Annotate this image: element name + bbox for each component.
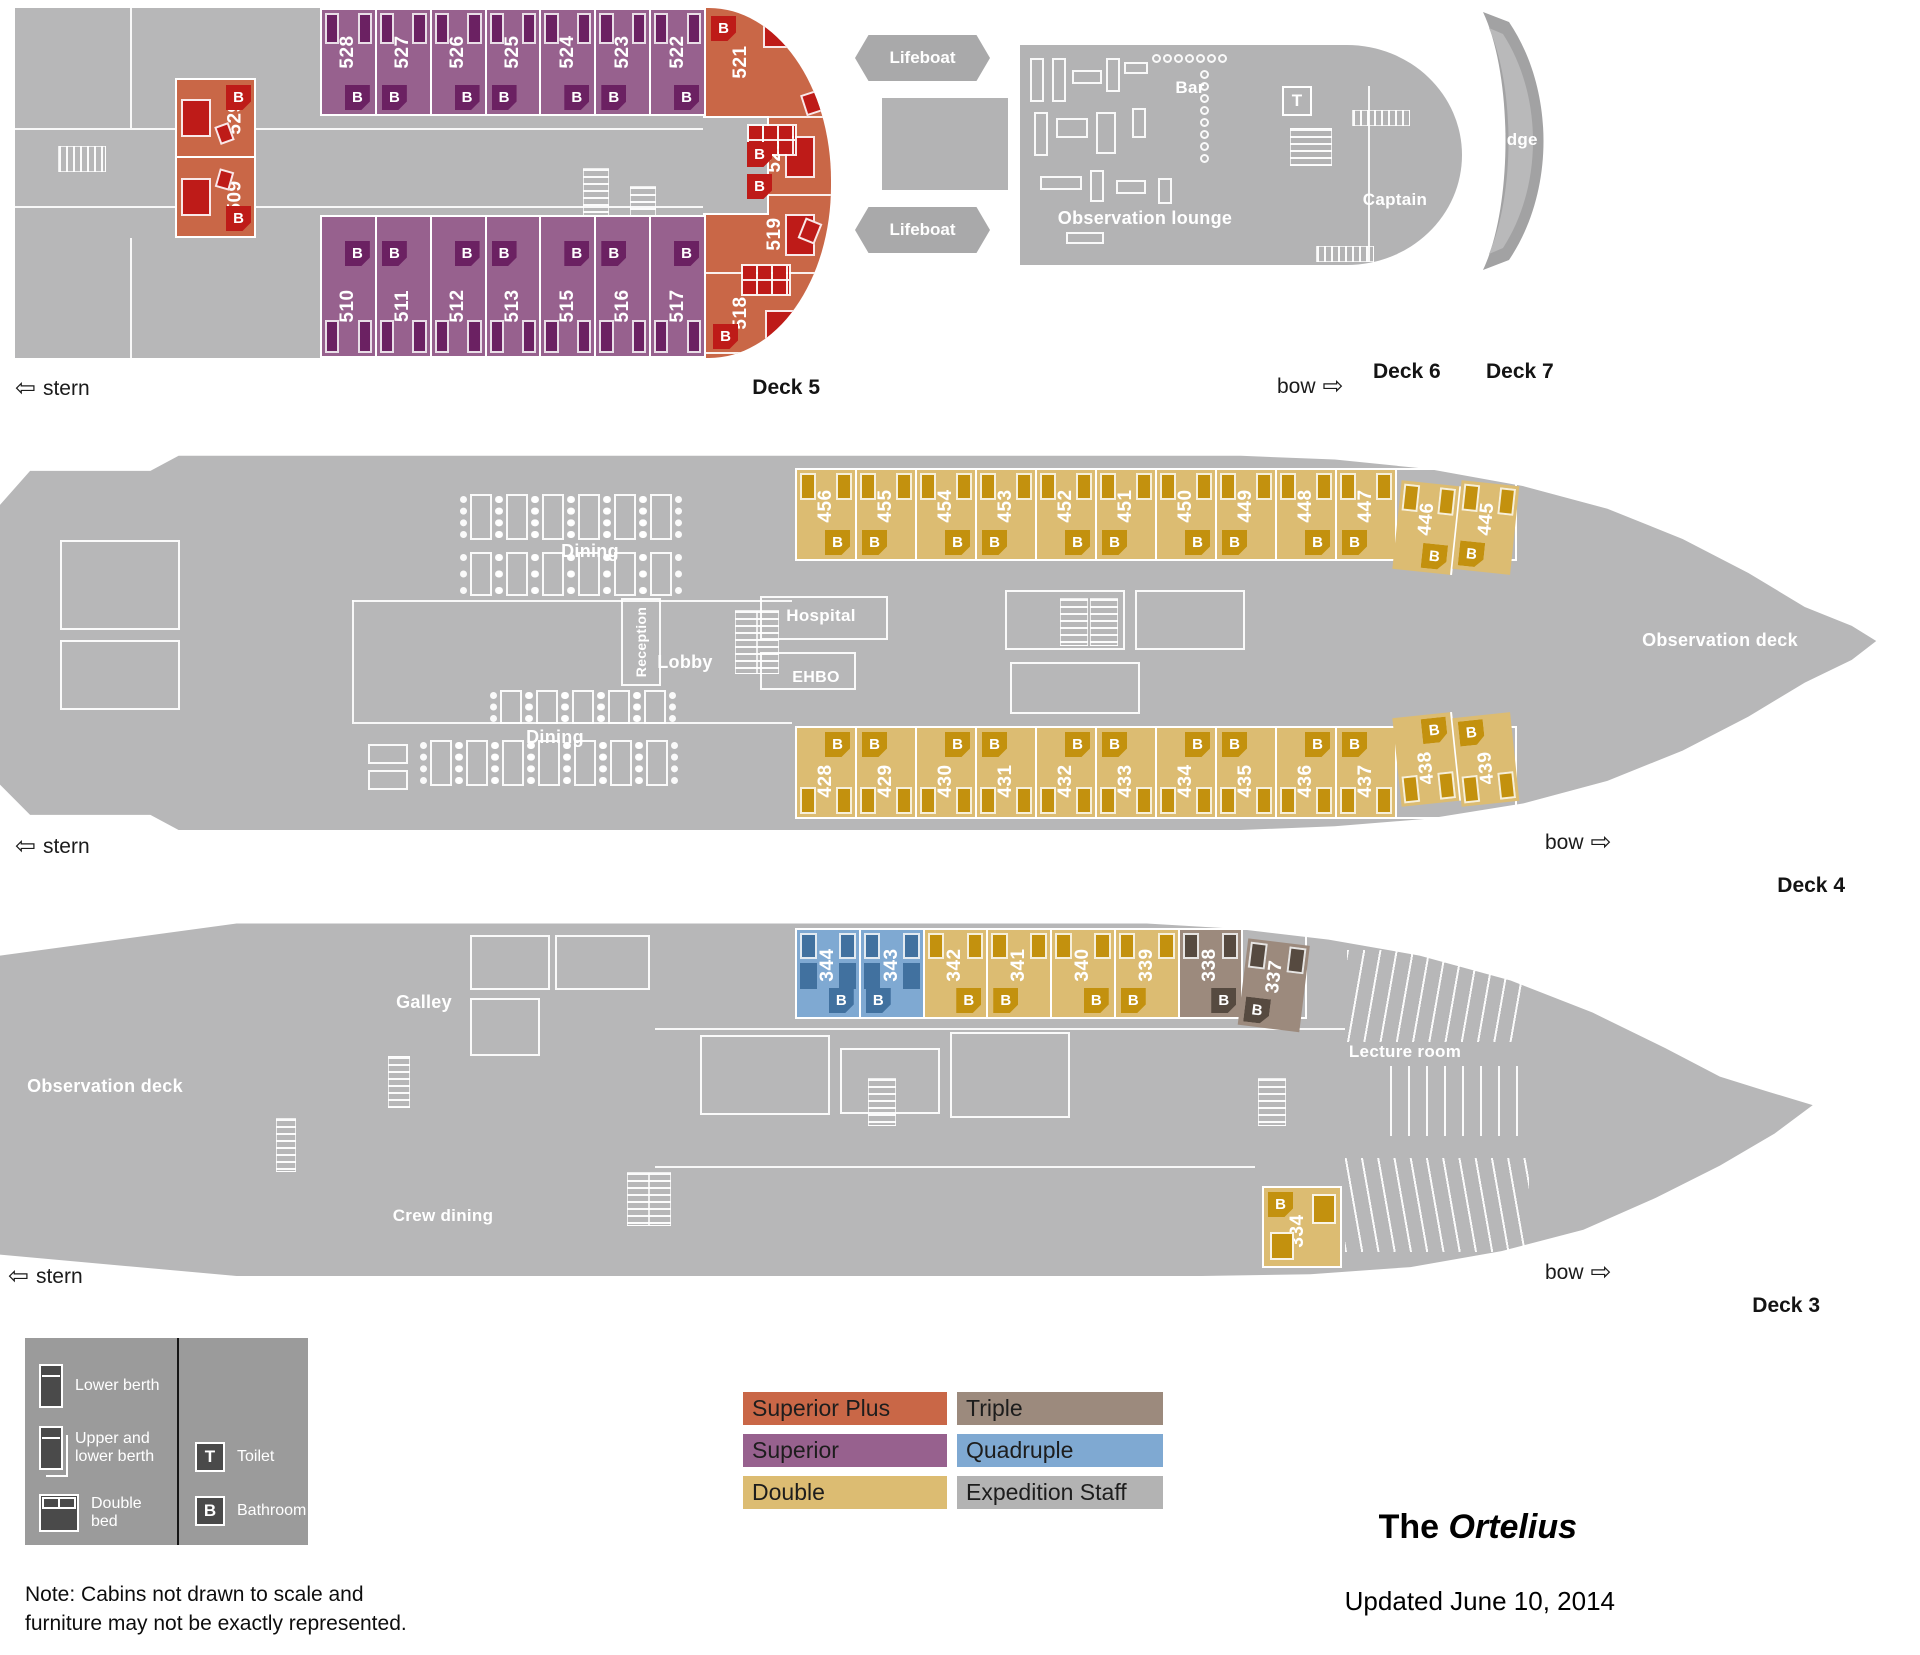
lifeboat-bottom: Lifeboat — [855, 207, 990, 253]
bed-icon — [1287, 946, 1307, 974]
legend-item: BBathroom — [195, 1496, 305, 1526]
bed-icon — [864, 933, 881, 959]
bed-icon — [1030, 933, 1047, 959]
cabin-339: 339B — [1116, 930, 1180, 1017]
cabin-number: 344 — [817, 948, 839, 981]
chair-icon — [1174, 54, 1183, 63]
bed-icon — [956, 787, 972, 814]
deck5-stern-label: ⇦ stern — [15, 376, 90, 401]
bed-icon — [836, 473, 852, 500]
wall-line — [15, 128, 703, 130]
bathroom-badge: B — [564, 85, 589, 110]
bathroom-badge: B — [492, 85, 517, 110]
cabin-432: 432B — [1037, 728, 1097, 817]
title-prefix: The — [1379, 1508, 1449, 1546]
bathroom-badge: B — [1185, 732, 1210, 757]
key-label: Triple — [966, 1395, 1023, 1422]
cabin-number: 525 — [502, 35, 524, 68]
room-outline — [368, 744, 408, 764]
bed-icon — [522, 320, 536, 353]
cabin-516: 516B — [596, 217, 651, 356]
deck3-bow-label: bow ⇨ — [1545, 1260, 1611, 1285]
bathroom-badge: B — [982, 530, 1007, 555]
chair-icon — [1152, 54, 1161, 63]
deck4-bow-label: bow ⇨ — [1545, 830, 1611, 855]
bed-icon — [1136, 787, 1152, 814]
single-bed-icon — [39, 1364, 63, 1408]
bow-text: bow — [1545, 831, 1584, 855]
stern-text: stern — [36, 1265, 83, 1289]
cabin-number: 453 — [995, 489, 1017, 522]
bed-icon — [358, 13, 372, 44]
bathroom-badge: B — [455, 85, 480, 110]
stairs-icon — [735, 610, 757, 674]
legend-bed-column: Lower berthUpper and lower berthDouble b… — [25, 1338, 177, 1545]
bathroom-badge: B — [1458, 719, 1485, 746]
bed-icon — [1100, 473, 1116, 500]
cabin-430: 430B — [917, 728, 977, 817]
bed-icon — [358, 320, 372, 353]
bed-icon — [1220, 473, 1236, 500]
key-swatch-superior: Superior — [743, 1434, 947, 1467]
cabin-525: 525B — [487, 10, 542, 114]
cabin-number: 439 — [1474, 751, 1499, 786]
cabin-522: 522B — [651, 10, 704, 114]
wall-line — [1368, 86, 1370, 262]
bed-icon — [1438, 771, 1456, 799]
cabin-number: 429 — [875, 765, 897, 798]
cabin-number: 527 — [392, 35, 414, 68]
table-icon — [506, 494, 528, 540]
legend-item: Lower berth — [39, 1364, 169, 1408]
room-outline — [1034, 112, 1048, 156]
chair-dots — [496, 554, 503, 594]
room-outline — [60, 540, 180, 630]
cabin-448: 448B — [1277, 470, 1337, 559]
table-icon — [506, 552, 528, 596]
bathroom-badge: B — [825, 530, 850, 555]
cabin-509: 509B — [177, 158, 254, 236]
cabin-number: 438 — [1414, 751, 1439, 786]
deck3-observation-deck-label: Observation deck — [25, 1076, 185, 1097]
room-outline — [700, 1035, 830, 1115]
table-icon — [470, 552, 492, 596]
deck4-label: Deck 4 — [1695, 874, 1845, 898]
cabin-528: 528B — [322, 10, 377, 114]
cabin-436: 436B — [1277, 728, 1337, 817]
bed-icon — [1094, 933, 1111, 959]
bed-icon — [1055, 933, 1072, 959]
chair-dots — [669, 692, 676, 722]
bed-icon — [1160, 473, 1176, 500]
stairs-icon — [1316, 246, 1374, 262]
room-outline — [1072, 70, 1102, 84]
bathroom-badge: B — [345, 85, 370, 110]
cabin-number: 451 — [1115, 489, 1137, 522]
chair-dots — [532, 554, 539, 594]
bed-icon — [1280, 473, 1296, 500]
cabin-number: 432 — [1055, 765, 1077, 798]
bed-icon — [1119, 933, 1136, 959]
bed-icon — [920, 473, 936, 500]
stairs-icon — [649, 1172, 671, 1226]
bathroom-badge: B — [382, 241, 407, 266]
legend-label: Lower berth — [75, 1377, 160, 1395]
cabin-number: 523 — [612, 35, 634, 68]
chair-dots — [492, 742, 499, 784]
stairs-icon — [1258, 1078, 1286, 1126]
room-outline — [1052, 58, 1066, 102]
cabin-513: 513B — [487, 217, 542, 356]
table-icon — [536, 690, 558, 724]
bathroom-badge: B — [601, 241, 626, 266]
chair-dots — [671, 742, 678, 784]
room-outline — [1030, 58, 1044, 102]
bed-icon — [1040, 473, 1056, 500]
chair-dots — [564, 742, 571, 784]
chair-dots — [636, 742, 643, 784]
room-outline — [1106, 58, 1120, 92]
room-outline — [1158, 178, 1172, 204]
bed-icon — [1340, 473, 1356, 500]
chair-dots — [460, 554, 467, 594]
bed-icon — [1160, 787, 1176, 814]
cabin-number: 517 — [667, 289, 689, 322]
key-label: Double — [752, 1479, 825, 1506]
cabin-number: 516 — [612, 289, 634, 322]
bathroom-badge: B — [1305, 732, 1330, 757]
cabin-454: 454B — [917, 470, 977, 559]
bed-icon — [1340, 787, 1356, 814]
bathroom-badge: B — [226, 85, 251, 110]
bed-icon — [1222, 933, 1239, 959]
chair-dots — [490, 692, 497, 722]
cabin-526: 526B — [432, 10, 487, 114]
cabin-334: 334B — [1262, 1186, 1342, 1268]
bed-icon — [763, 18, 807, 48]
ehbo-label: EHBO — [768, 669, 864, 687]
bow-text: bow — [1545, 1261, 1584, 1285]
bed-icon — [967, 933, 984, 959]
bed-icon — [654, 13, 668, 44]
legend-item: Double bed — [39, 1494, 169, 1532]
cabin-number: 522 — [667, 35, 689, 68]
cabin-number: 512 — [447, 289, 469, 322]
stern-arrow-icon: ⇦ — [8, 1264, 29, 1289]
bathroom-badge: B — [993, 988, 1018, 1013]
bed-icon — [800, 787, 816, 814]
bathroom-badge: B — [674, 85, 699, 110]
cabin-338: 338B — [1180, 930, 1244, 1017]
cabin-435: 435B — [1217, 728, 1277, 817]
bed-icon — [1100, 787, 1116, 814]
table-icon — [542, 494, 564, 540]
bed-icon — [325, 320, 339, 353]
deck5-bow-cabins: 521520519518BBBB — [703, 8, 831, 358]
bathroom-badge: B — [1065, 530, 1090, 555]
bed-icon — [800, 473, 816, 500]
chair-dots — [604, 496, 611, 538]
chair-icon — [1207, 54, 1216, 63]
cabin-number: 436 — [1295, 765, 1317, 798]
cabin-337: 337B — [1238, 938, 1310, 1032]
bed-icon — [1196, 473, 1212, 500]
cabin-number: 452 — [1055, 489, 1077, 522]
cabin-342: 342B — [925, 930, 989, 1017]
lecture-seats — [1345, 1158, 1529, 1252]
cabin-447: 447B — [1337, 470, 1397, 559]
bed-icon — [991, 933, 1008, 959]
bed-icon — [435, 320, 449, 353]
deck5-cabins-bottom-row: 510B511B512B513B515B516B517B — [320, 215, 706, 358]
cabin-number: 448 — [1295, 489, 1317, 522]
table-icon — [614, 494, 636, 540]
bow-arrow-icon: ⇨ — [1591, 1260, 1612, 1285]
bed-icon — [920, 787, 936, 814]
chair-icon — [1163, 54, 1172, 63]
cabin-number: 437 — [1355, 765, 1377, 798]
bed-icon — [632, 13, 646, 44]
cabin-number: 528 — [337, 35, 359, 68]
bathroom-badge: B — [1065, 732, 1090, 757]
cabin-341: 341B — [988, 930, 1052, 1017]
dining-label-top: Dining — [540, 541, 640, 562]
bed-icon — [1256, 787, 1272, 814]
bed-icon — [412, 320, 426, 353]
cabin-number: 434 — [1175, 765, 1197, 798]
bathroom-badge: B — [492, 241, 517, 266]
bathroom-badge: B — [982, 732, 1007, 757]
chair-dots — [598, 692, 605, 722]
chair-dots — [528, 742, 535, 784]
bathroom-badge: B — [1458, 540, 1485, 567]
cabin-452: 452B — [1037, 470, 1097, 559]
room-outline — [1124, 62, 1148, 74]
bed-icon — [1158, 933, 1175, 959]
deck3-stern-label: ⇦ stern — [8, 1264, 83, 1289]
table-icon — [578, 494, 600, 540]
cabin-527: 527B — [377, 10, 432, 114]
chair-dots — [675, 496, 682, 538]
room-outline — [470, 935, 550, 990]
table-icon — [500, 690, 522, 724]
chair-dots — [496, 496, 503, 538]
bed-icon — [544, 13, 558, 44]
cabin-number: 526 — [447, 35, 469, 68]
bow-arrow-icon: ⇨ — [1591, 830, 1612, 855]
bed-icon — [1280, 787, 1296, 814]
chair-icon — [1196, 54, 1205, 63]
deck6-structure — [882, 98, 1008, 190]
legend-badge-column: TToiletBBathroom — [177, 1338, 308, 1545]
bed-icon — [980, 787, 996, 814]
bed-icon — [1248, 942, 1268, 970]
deck5-cabins-529-509: 529B509B — [175, 78, 256, 238]
stairs-icon — [1290, 128, 1332, 166]
dresser-icon — [743, 266, 789, 294]
bed-icon — [1312, 1194, 1336, 1224]
deck5-label: Deck 5 — [700, 376, 820, 400]
room-outline — [1066, 232, 1104, 244]
room-outline — [1096, 112, 1116, 154]
wall-line — [130, 8, 132, 128]
chair-icon — [1200, 154, 1209, 163]
cabin-511: 511B — [377, 217, 432, 356]
deck5-cabins-top-row: 528B527B526B525B524B523B522B — [320, 8, 706, 116]
room-outline — [1116, 180, 1146, 194]
room-outline — [1135, 590, 1245, 650]
bathroom-badge: B — [1102, 530, 1127, 555]
key-label: Quadruple — [966, 1437, 1073, 1464]
stern-text: stern — [43, 835, 90, 859]
chair-dots — [562, 692, 569, 722]
room-outline — [950, 1032, 1070, 1118]
bathroom-badge: B — [945, 732, 970, 757]
cabin-523: 523B — [596, 10, 651, 114]
observation-lounge-label: Observation lounge — [1030, 208, 1260, 229]
toilet-badge: T — [1282, 86, 1312, 116]
chair-dots — [460, 496, 467, 538]
note-text: Note: Cabins not drawn to scale and furn… — [25, 1580, 445, 1639]
cabin-number: 513 — [502, 289, 524, 322]
bed-icon — [1040, 787, 1056, 814]
bed-icon — [435, 13, 449, 44]
bed-icon — [956, 473, 972, 500]
bed-icon — [577, 320, 591, 353]
cabin-number: 445 — [1474, 501, 1499, 536]
bed-icon — [896, 473, 912, 500]
bed-icon — [1498, 487, 1516, 515]
bed-icon — [654, 320, 668, 353]
cabin-517: 517B — [651, 217, 704, 356]
deck3-label: Deck 3 — [1660, 1294, 1820, 1318]
room-outline — [60, 640, 180, 710]
stairs-icon — [1060, 598, 1088, 646]
stairs-icon — [583, 168, 609, 216]
cabin-number: 430 — [935, 765, 957, 798]
bathroom-badge-icon: B — [195, 1496, 225, 1526]
deck4-cabins-top-row: 456B455B454B453B452B451B450B449B448B447B… — [795, 468, 1517, 561]
bridge-label: Bridge — [1466, 130, 1554, 150]
bed-icon — [181, 178, 211, 216]
stairs-icon — [627, 1172, 649, 1226]
cabin-number: 433 — [1115, 765, 1137, 798]
hospital-label: Hospital — [766, 606, 876, 626]
wall-line — [352, 600, 792, 602]
deck6-bow-label: bow ⇨ — [1277, 374, 1343, 399]
cabin-number: 342 — [944, 948, 966, 981]
bed-icon — [800, 933, 817, 959]
bed-icon — [1270, 1232, 1294, 1260]
lobby-label: Lobby — [645, 652, 725, 673]
bathroom-badge: B — [226, 206, 251, 231]
cabin-number: 340 — [1072, 948, 1094, 981]
room-outline — [470, 998, 540, 1056]
cabin-437: 437B — [1337, 728, 1397, 817]
reception-label: Reception — [633, 577, 649, 707]
lifeboat-label: Lifeboat — [889, 220, 955, 240]
cabin-number: 450 — [1175, 489, 1197, 522]
legend-item: TToilet — [195, 1442, 305, 1472]
key-swatch-superior-plus: Superior Plus — [743, 1392, 947, 1425]
cabin-512: 512B — [432, 217, 487, 356]
bathroom-badge: B — [1421, 543, 1448, 570]
cabin-number: 454 — [935, 489, 957, 522]
lifeboat-top: Lifeboat — [855, 35, 990, 81]
chair-dots — [420, 742, 427, 784]
room-outline — [368, 770, 408, 790]
chair-dots — [640, 496, 647, 538]
bed-icon — [928, 933, 945, 959]
wall-line — [655, 1166, 1255, 1168]
bed-icon — [325, 13, 339, 44]
bathroom-badge: B — [1211, 988, 1236, 1013]
chair-dots — [568, 496, 575, 538]
bed-icon — [1462, 775, 1480, 803]
cabin-344: 344B — [797, 930, 861, 1017]
dining-label-bottom: Dining — [505, 727, 605, 748]
bathroom-badge: B — [945, 530, 970, 555]
stern-arrow-icon: ⇦ — [15, 834, 36, 859]
bed-icon — [687, 13, 701, 44]
cabin-434: 434B — [1157, 728, 1217, 817]
bed-icon — [599, 320, 613, 353]
bed-icon — [181, 99, 211, 137]
bed-icon — [1016, 787, 1032, 814]
bed-icon — [1438, 487, 1456, 515]
cabin-number: 428 — [815, 765, 837, 798]
bed-icon — [980, 473, 996, 500]
bed-icon — [1376, 473, 1392, 500]
cabin-number: 524 — [557, 35, 579, 68]
key-label: Expedition Staff — [966, 1479, 1127, 1506]
chair-dots — [600, 742, 607, 784]
cabin-number: 455 — [875, 489, 897, 522]
lecture-seats — [1390, 1066, 1528, 1136]
bathroom-badge: B — [1185, 530, 1210, 555]
table-icon — [646, 740, 668, 786]
table-icon — [572, 690, 594, 724]
room-outline — [1132, 108, 1146, 138]
cabin-450: 450B — [1157, 470, 1217, 559]
room-outline — [555, 935, 650, 990]
room-outline — [1056, 118, 1088, 138]
bathroom-badge: B — [1222, 732, 1247, 757]
bathroom-badge: B — [345, 241, 370, 266]
stern-text: stern — [43, 377, 90, 401]
bed-icon — [687, 320, 701, 353]
bed-icon — [903, 933, 920, 959]
cabin-446: 446B — [1392, 480, 1461, 575]
bed-icon — [1462, 484, 1480, 512]
key-label: Superior — [752, 1437, 839, 1464]
lecture-seats — [1347, 950, 1525, 1042]
bunk-bed-icon — [39, 1426, 63, 1470]
bathroom-badge: B — [1084, 988, 1109, 1013]
bed-icon — [839, 933, 856, 959]
bathroom-badge: B — [674, 241, 699, 266]
stern-arrow-icon: ⇦ — [15, 376, 36, 401]
bed-icon — [1402, 775, 1420, 803]
bathroom-badge: B — [829, 988, 854, 1013]
bed-icon — [860, 787, 876, 814]
cabin-number: 519 — [764, 217, 786, 250]
crew-dining-label: Crew dining — [383, 1206, 503, 1226]
bed-icon — [1498, 771, 1516, 799]
bed-icon — [1316, 473, 1332, 500]
table-icon — [608, 690, 630, 724]
chair-icon — [1200, 106, 1209, 115]
